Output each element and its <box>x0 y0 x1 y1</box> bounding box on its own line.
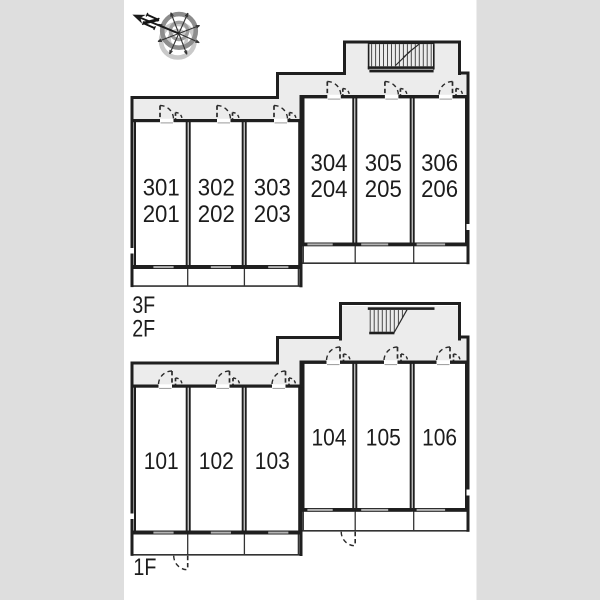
svg-text:201: 201 <box>143 201 180 228</box>
svg-text:102: 102 <box>199 448 234 475</box>
svg-text:305: 305 <box>365 150 402 177</box>
svg-text:205: 205 <box>365 176 402 203</box>
svg-text:104: 104 <box>312 425 347 452</box>
svg-text:301: 301 <box>143 175 180 202</box>
svg-text:303: 303 <box>254 175 291 202</box>
svg-text:302: 302 <box>198 175 235 202</box>
svg-text:206: 206 <box>421 176 458 203</box>
svg-text:202: 202 <box>198 201 235 228</box>
svg-text:1F: 1F <box>133 554 156 581</box>
svg-text:306: 306 <box>421 150 458 177</box>
svg-text:204: 204 <box>311 176 348 203</box>
svg-text:103: 103 <box>255 448 290 475</box>
svg-text:203: 203 <box>254 201 291 228</box>
svg-text:105: 105 <box>366 425 401 452</box>
svg-text:106: 106 <box>422 425 457 452</box>
svg-text:304: 304 <box>311 150 348 177</box>
svg-text:2F: 2F <box>132 316 155 343</box>
svg-text:101: 101 <box>144 448 179 475</box>
